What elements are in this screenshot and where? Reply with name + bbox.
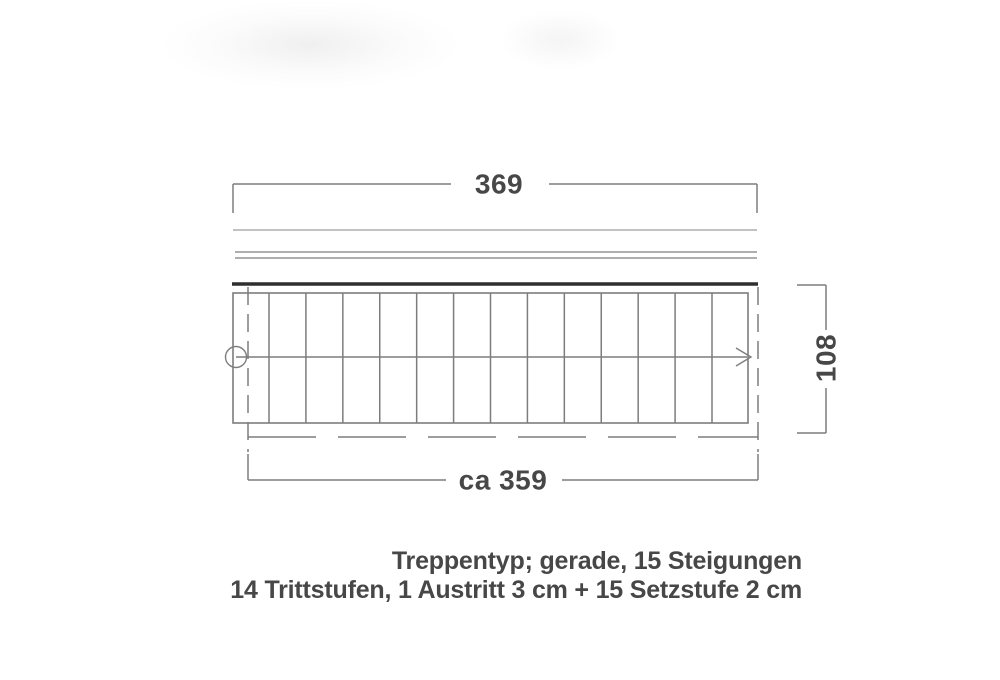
stair-body bbox=[233, 293, 748, 423]
tread-lines bbox=[269, 293, 712, 423]
caption-line-1: Treppentyp; gerade, 15 Steigungen bbox=[392, 547, 802, 575]
drawing-canvas: 369 108 bbox=[0, 0, 1000, 680]
stairwell-opening-outline bbox=[248, 287, 758, 452]
dimension-right: 108 bbox=[797, 285, 842, 433]
dimension-top-label: 369 bbox=[475, 169, 523, 200]
dimension-top: 369 bbox=[233, 169, 757, 214]
caption: Treppentyp; gerade, 15 Steigungen 14 Tri… bbox=[230, 547, 802, 604]
walking-line-group bbox=[226, 347, 752, 368]
dimension-bottom: ca 359 bbox=[248, 454, 758, 496]
dimension-bottom-label: ca 359 bbox=[459, 465, 548, 496]
dimension-right-label: 108 bbox=[811, 334, 842, 382]
caption-line-2: 14 Trittstufen, 1 Austritt 3 cm + 15 Set… bbox=[230, 576, 802, 604]
floor-edge-lines bbox=[232, 230, 758, 284]
stair-plan-drawing: 369 108 bbox=[0, 0, 1000, 680]
